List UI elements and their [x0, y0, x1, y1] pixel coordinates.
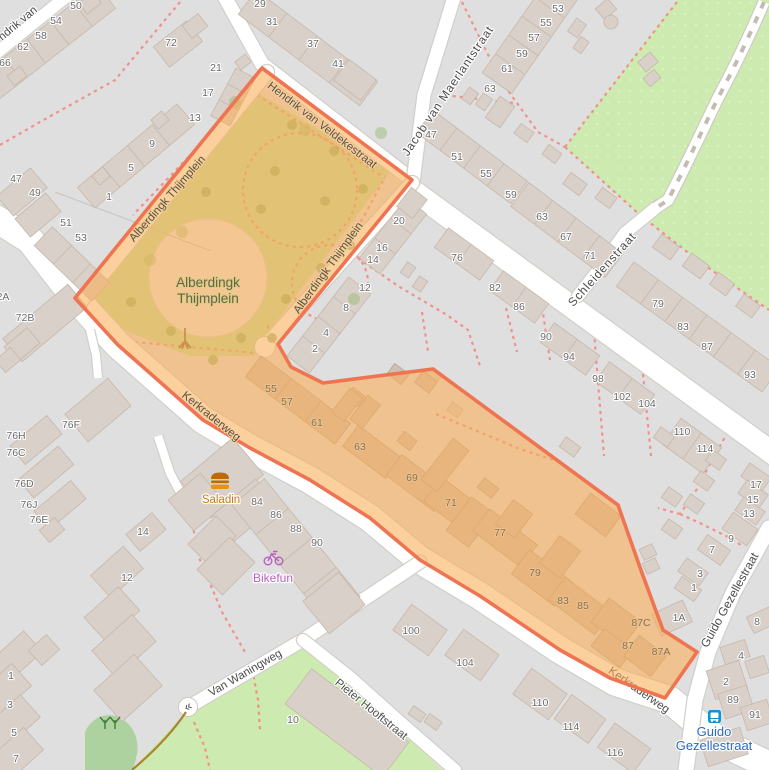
svg-text:87C: 87C [631, 617, 651, 629]
svg-text:76J: 76J [21, 499, 38, 511]
svg-text:55: 55 [480, 168, 492, 180]
svg-text:55: 55 [540, 17, 552, 29]
svg-text:54: 54 [50, 15, 62, 27]
svg-text:110: 110 [532, 697, 549, 709]
svg-text:100: 100 [402, 625, 420, 637]
svg-text:12: 12 [121, 572, 133, 584]
svg-text:20: 20 [393, 215, 405, 227]
svg-text:102: 102 [613, 391, 631, 403]
svg-text:61: 61 [311, 417, 323, 429]
svg-text:62: 62 [17, 41, 29, 53]
svg-text:61: 61 [501, 63, 513, 75]
svg-text:91: 91 [749, 709, 761, 721]
svg-text:17: 17 [750, 479, 762, 491]
svg-text:84: 84 [251, 496, 263, 508]
svg-text:4: 4 [738, 650, 744, 662]
svg-text:66: 66 [0, 57, 11, 69]
svg-text:51: 51 [60, 217, 72, 229]
svg-text:12: 12 [359, 282, 371, 294]
svg-text:10: 10 [287, 714, 299, 726]
svg-text:88: 88 [290, 523, 302, 535]
svg-text:86: 86 [270, 509, 282, 521]
svg-text:89: 89 [727, 694, 739, 706]
svg-text:110: 110 [674, 426, 691, 438]
svg-text:1: 1 [106, 191, 112, 203]
svg-text:53: 53 [75, 232, 87, 244]
svg-text:53: 53 [552, 3, 564, 15]
svg-text:79: 79 [652, 298, 664, 310]
svg-text:47: 47 [10, 173, 22, 185]
svg-text:16: 16 [376, 242, 388, 254]
svg-text:67: 67 [560, 231, 572, 243]
svg-text:3: 3 [7, 699, 13, 711]
svg-text:76C: 76C [6, 447, 26, 459]
svg-text:50: 50 [70, 0, 82, 12]
svg-text:55: 55 [265, 383, 277, 395]
svg-text:114: 114 [563, 721, 580, 733]
svg-text:59: 59 [516, 48, 528, 60]
svg-text:9: 9 [728, 533, 734, 545]
svg-text:5: 5 [11, 727, 17, 739]
svg-text:Gezellestraat: Gezellestraat [676, 738, 753, 753]
svg-text:77: 77 [494, 527, 506, 539]
svg-text:104: 104 [456, 657, 474, 669]
svg-text:2: 2 [312, 343, 318, 355]
svg-text:5: 5 [128, 162, 134, 174]
svg-text:87: 87 [701, 341, 713, 353]
svg-text:Guido: Guido [697, 724, 732, 739]
svg-text:21: 21 [210, 62, 222, 74]
svg-text:4: 4 [323, 327, 329, 339]
svg-text:72B: 72B [16, 312, 35, 324]
svg-text:83: 83 [557, 595, 569, 607]
svg-text:82: 82 [489, 282, 501, 294]
svg-text:8: 8 [754, 616, 760, 628]
svg-text:37: 37 [307, 38, 319, 50]
svg-text:98: 98 [592, 373, 604, 385]
svg-text:76E: 76E [30, 514, 49, 526]
svg-text:83: 83 [677, 321, 689, 333]
svg-text:Saladin: Saladin [202, 494, 240, 506]
svg-text:90: 90 [311, 537, 323, 549]
svg-text:29: 29 [254, 0, 266, 10]
svg-text:58: 58 [35, 30, 47, 42]
svg-text:49: 49 [29, 187, 41, 199]
svg-text:13: 13 [189, 112, 201, 124]
svg-text:57: 57 [281, 396, 293, 408]
svg-text:Alberdingk: Alberdingk [176, 275, 240, 290]
svg-text:Thijmplein: Thijmplein [177, 291, 239, 306]
svg-text:57: 57 [528, 32, 540, 44]
svg-text:63: 63 [484, 83, 496, 95]
svg-text:1A: 1A [673, 612, 686, 624]
svg-text:104: 104 [638, 398, 656, 410]
svg-text:7: 7 [709, 544, 715, 556]
svg-text:51: 51 [451, 151, 463, 163]
svg-text:76: 76 [451, 252, 463, 264]
svg-text:93: 93 [744, 369, 756, 381]
svg-text:8: 8 [343, 302, 349, 314]
svg-text:114: 114 [697, 443, 714, 455]
svg-text:41: 41 [332, 58, 344, 70]
svg-text:87A: 87A [652, 646, 671, 658]
svg-text:14: 14 [367, 254, 379, 266]
svg-text:71: 71 [584, 250, 596, 262]
svg-text:13: 13 [743, 508, 755, 520]
svg-text:90: 90 [540, 331, 552, 343]
svg-text:Bikefun: Bikefun [253, 571, 293, 585]
svg-text:3: 3 [697, 568, 703, 580]
svg-text:14: 14 [137, 526, 149, 538]
svg-text:79: 79 [529, 567, 541, 579]
svg-text:72: 72 [165, 37, 177, 49]
svg-text:63: 63 [536, 211, 548, 223]
svg-text:76D: 76D [14, 478, 34, 490]
svg-text:7: 7 [13, 753, 19, 765]
svg-text:87: 87 [622, 640, 634, 652]
svg-text:2A: 2A [0, 291, 9, 303]
svg-text:31: 31 [266, 16, 278, 28]
svg-text:1: 1 [8, 670, 14, 682]
svg-text:116: 116 [607, 747, 624, 759]
svg-text:15: 15 [747, 494, 759, 506]
svg-text:17: 17 [202, 87, 214, 99]
svg-text:94: 94 [563, 351, 575, 363]
svg-text:76H: 76H [6, 430, 25, 442]
svg-text:85: 85 [577, 600, 589, 612]
svg-text:76F: 76F [62, 419, 80, 431]
svg-text:63: 63 [354, 441, 366, 453]
svg-text:59: 59 [505, 189, 517, 201]
svg-text:71: 71 [445, 497, 457, 509]
svg-text:1: 1 [691, 582, 697, 594]
svg-text:86: 86 [513, 301, 525, 313]
svg-text:69: 69 [406, 472, 418, 484]
svg-text:9: 9 [149, 138, 155, 150]
svg-text:2: 2 [723, 676, 729, 688]
